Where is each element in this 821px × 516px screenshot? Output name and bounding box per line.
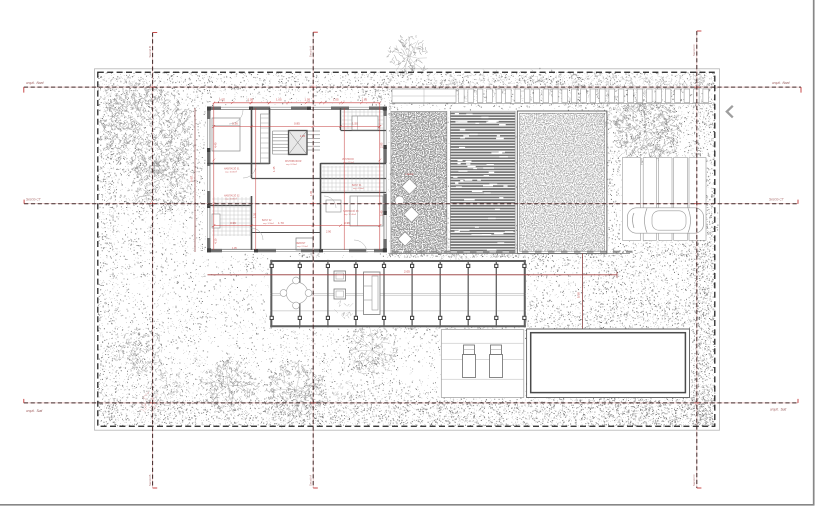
svg-text:sup. 12.40m²: sup. 12.40m² [344,213,356,216]
svg-text:sup. 10.80m²: sup. 10.80m² [225,171,237,174]
svg-text:arquit.: arquit. [26,409,35,413]
svg-text:2.85: 2.85 [380,142,384,148]
svg-text:3.36: 3.36 [344,221,350,225]
svg-text:Secció B: Secció B [148,475,152,486]
svg-text:Secció C: Secció C [692,44,696,56]
svg-text:VESTIDOR: VESTIDOR [342,159,354,161]
svg-text:REBOST: REBOST [296,243,306,245]
svg-text:Secció C: Secció C [692,474,696,486]
svg-text:Nord: Nord [37,81,44,85]
svg-text:1.35: 1.35 [253,212,257,218]
svg-text:sup. 3.90m²: sup. 3.90m² [263,222,274,225]
svg-text:Secció CT: Secció CT [26,198,42,202]
svg-text:1.05: 1.05 [305,98,311,102]
svg-text:Secció CT: Secció CT [769,198,785,202]
svg-text:1.05: 1.05 [300,134,306,138]
svg-text:1.50: 1.50 [352,122,358,126]
svg-text:1.05: 1.05 [248,98,254,102]
svg-text:1.05: 1.05 [232,247,237,250]
svg-text:3.36: 3.36 [230,221,236,225]
svg-text:1.35: 1.35 [309,190,313,196]
svg-text:sup. 2.10m²: sup. 2.10m² [297,245,308,248]
svg-text:BANY 02: BANY 02 [262,219,272,222]
svg-text:Secció A: Secció A [308,475,312,486]
svg-text:Nord: Nord [783,81,790,85]
svg-text:1.05: 1.05 [276,98,282,102]
svg-text:4.40: 4.40 [214,142,218,148]
svg-text:HABITACIÓ 03: HABITACIÓ 03 [343,210,359,213]
svg-text:Sud: Sud [37,409,43,413]
svg-text:sup. 4.10m²: sup. 4.10m² [343,161,354,164]
svg-text:Sud: Sud [781,408,787,412]
svg-text:0.85: 0.85 [294,122,300,126]
svg-text:c.tanca: c.tanca [405,172,414,176]
svg-text:Secció B: Secció B [148,46,152,57]
svg-text:3.36: 3.36 [232,122,238,126]
svg-text:arquit.: arquit. [772,81,781,85]
svg-text:BANY 01: BANY 01 [352,184,362,187]
svg-text:1.05: 1.05 [219,98,225,102]
svg-text:HABITACIÓ 02: HABITACIÓ 02 [224,195,240,198]
svg-text:arquit.: arquit. [770,408,779,412]
svg-text:Secció A: Secció A [308,46,312,57]
svg-text:1.70: 1.70 [278,221,284,225]
svg-text:sup. 10.80m²: sup. 10.80m² [225,198,237,201]
svg-text:2.90: 2.90 [326,229,332,233]
svg-text:1.05: 1.05 [362,98,368,102]
svg-text:sup. 4.90m²: sup. 4.90m² [353,187,364,190]
svg-text:1.35: 1.35 [272,166,276,172]
svg-text:DISTRIBUIDOR: DISTRIBUIDOR [285,161,302,163]
svg-text:6.60: 6.60 [190,176,194,182]
svg-text:5.40: 5.40 [380,210,384,216]
svg-text:arquit.: arquit. [26,81,35,85]
svg-text:1.05: 1.05 [333,98,339,102]
svg-text:5.60: 5.60 [577,292,581,298]
svg-text:sup. 8.20m²: sup. 8.20m² [286,163,297,166]
svg-text:HABITACIÓ 01: HABITACIÓ 01 [224,168,240,171]
svg-text:2.05: 2.05 [404,270,410,274]
svg-text:4.10: 4.10 [214,238,218,244]
